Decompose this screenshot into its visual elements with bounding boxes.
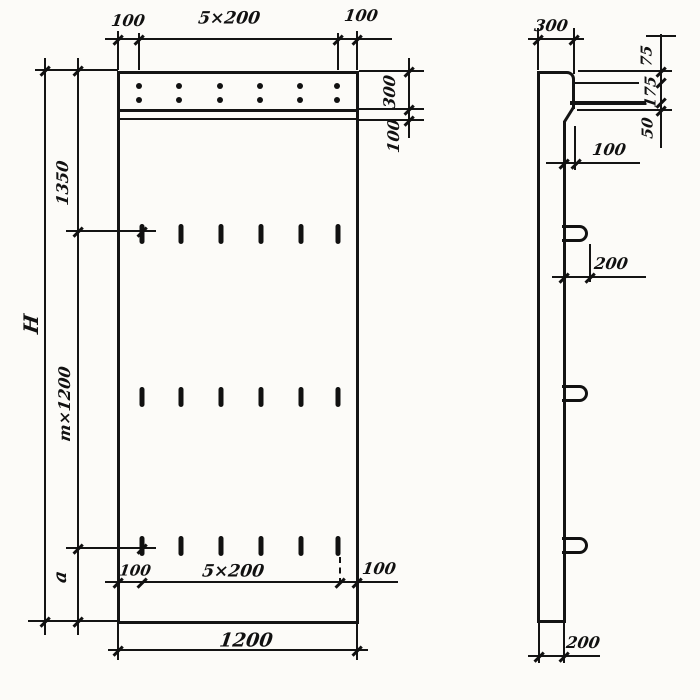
slot-mark [219,387,224,407]
anchor-dot [136,97,142,103]
dim-bottom-inner-middle: 5×200 [201,564,265,581]
slot-mark [299,536,304,556]
slot-mark [219,536,224,556]
dim-line [546,162,640,164]
slot-mark [179,224,184,244]
slot-mark [336,224,341,244]
dim-line [44,58,46,635]
panel-outline [117,71,359,624]
dim-line [573,28,575,74]
slot-mark [299,224,304,244]
dim-middle-segment: m×1200 [57,365,73,442]
technical-drawing-canvas: 100 5×200 100 300 100 H 1350 m×1200 a 10… [0,0,700,700]
anchor-dot [257,97,263,103]
dim-bottom-inner-left: 100 [118,564,151,579]
dim-upper-segment: 1350 [55,160,71,207]
anchor-dot [334,97,340,103]
dowel-bar-lower [570,101,646,105]
dim-line [108,649,368,651]
side-bottom-edge [537,620,566,623]
dim-top-right: 100 [343,8,379,24]
anchor-dot [176,83,182,89]
dim-top-left: 100 [110,13,146,29]
dim-bottom-inner-right: 100 [361,561,397,577]
anchor-dot [176,97,182,103]
slot-mark [140,387,145,407]
dim-line [105,38,392,40]
anchor-dot [217,97,223,103]
dim-band-height: 300 [382,74,398,110]
dim-bar-spacing: 175 [644,75,659,108]
dim-bar-bottom: 50 [641,117,656,140]
dim-strip-height: 100 [386,118,402,154]
slot-mark [259,224,264,244]
dim-line [359,108,424,110]
dim-bar-top-offset: 75 [640,45,655,68]
dim-overall-height: H [21,313,41,335]
dim-line [117,623,119,660]
dim-line [359,70,424,72]
chamfer-strip-line [119,118,356,120]
anchor-dot [334,83,340,89]
dim-ledge-offset: 100 [591,142,627,158]
anchor-dot [136,83,142,89]
dim-line [537,28,539,70]
side-left-face [537,72,540,622]
dim-thickness: 200 [565,635,601,651]
dim-line [356,623,358,660]
slot-mark [259,536,264,556]
lifting-loop [562,537,588,554]
lifting-loop [562,225,588,242]
dim-line [359,119,424,121]
slot-mark [299,387,304,407]
tick-mark [570,158,581,169]
anchor-dot [217,83,223,89]
dowel-bar-upper [574,82,639,85]
dim-panel-width: 1200 [218,632,274,651]
slot-mark [336,536,341,556]
anchor-dot [257,83,263,89]
dim-loop-length: 200 [593,256,629,272]
dim-top-middle: 5×200 [197,11,261,28]
dim-lower-segment: a [52,570,70,584]
slot-mark [140,224,145,244]
slot-mark [140,536,145,556]
slot-mark [259,387,264,407]
anchor-dot [297,83,303,89]
band-bottom-line [119,109,356,112]
slot-mark [219,224,224,244]
slot-mark [179,387,184,407]
slot-mark [336,387,341,407]
anchor-dot [297,97,303,103]
slot-mark [179,536,184,556]
lifting-loop [562,385,588,402]
dim-line [660,34,662,148]
